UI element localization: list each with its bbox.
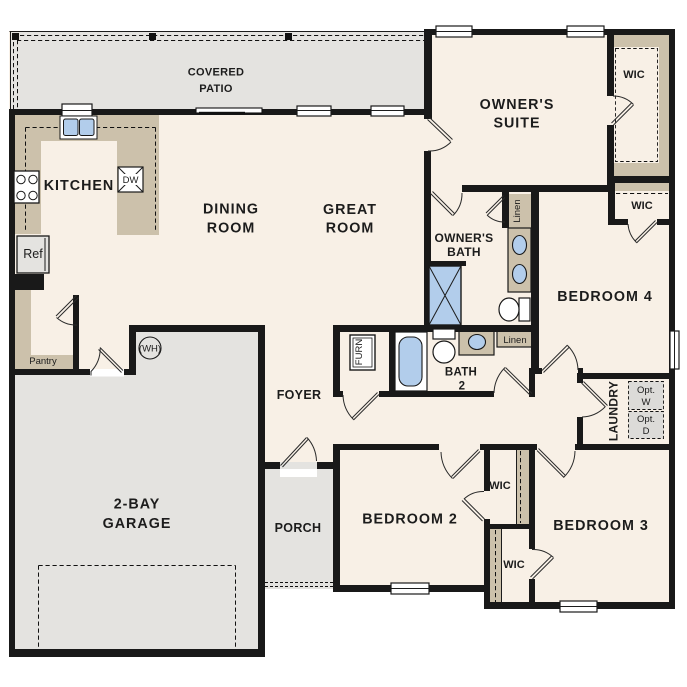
svg-text:BEDROOM 2: BEDROOM 2 (362, 512, 458, 528)
svg-text:WIC: WIC (623, 69, 644, 81)
svg-text:WIC: WIC (489, 480, 510, 492)
svg-text:Pantry: Pantry (29, 356, 57, 367)
svg-text:Ref: Ref (23, 247, 43, 261)
svg-text:DW: DW (123, 175, 139, 186)
svg-text:FURN: FURN (354, 339, 365, 366)
svg-text:2: 2 (459, 381, 466, 393)
svg-text:BATH: BATH (447, 245, 481, 259)
svg-text:DINING: DINING (203, 202, 259, 218)
svg-text:WIC: WIC (631, 200, 652, 212)
svg-text:PORCH: PORCH (275, 521, 322, 535)
svg-text:BEDROOM 3: BEDROOM 3 (553, 518, 649, 534)
svg-text:Opt.: Opt. (637, 414, 655, 425)
svg-text:(WH): (WH) (139, 344, 161, 355)
svg-text:BEDROOM 4: BEDROOM 4 (557, 289, 653, 305)
svg-text:D: D (643, 426, 650, 437)
svg-text:COVERED: COVERED (188, 67, 245, 79)
svg-text:Linen: Linen (512, 199, 523, 222)
svg-text:W: W (642, 397, 651, 408)
svg-text:ROOM: ROOM (326, 221, 374, 237)
svg-text:PATIO: PATIO (199, 83, 233, 95)
svg-text:2-BAY: 2-BAY (114, 497, 161, 513)
svg-text:Linen: Linen (503, 335, 526, 346)
svg-text:OWNER'S: OWNER'S (480, 97, 555, 113)
svg-text:GARAGE: GARAGE (103, 516, 172, 532)
svg-text:LAUNDRY: LAUNDRY (607, 381, 621, 441)
svg-text:GREAT: GREAT (323, 202, 377, 218)
svg-text:WIC: WIC (503, 559, 524, 571)
svg-text:Opt.: Opt. (637, 385, 655, 396)
svg-text:KITCHEN: KITCHEN (44, 178, 115, 194)
svg-text:OWNER'S: OWNER'S (435, 231, 494, 245)
svg-text:ROOM: ROOM (207, 221, 255, 237)
svg-text:BATH: BATH (445, 367, 477, 379)
svg-text:SUITE: SUITE (493, 116, 540, 132)
svg-text:FOYER: FOYER (277, 388, 322, 402)
